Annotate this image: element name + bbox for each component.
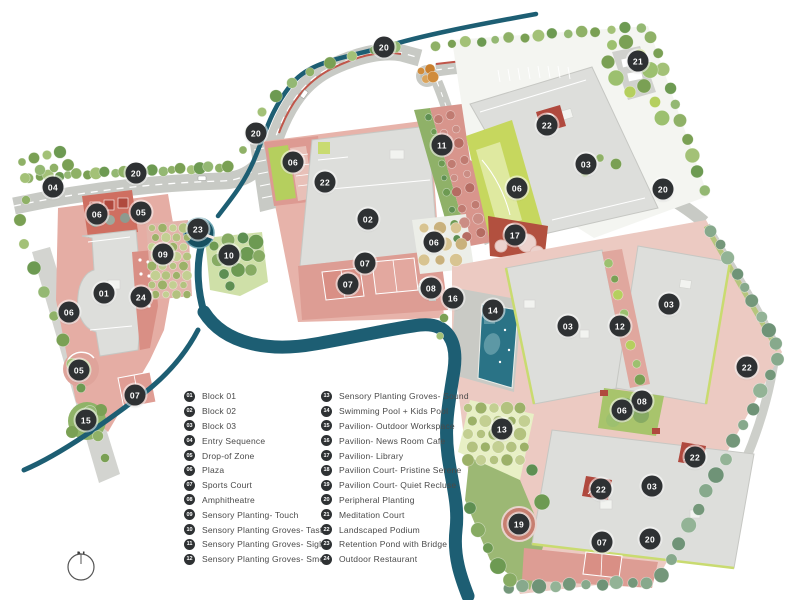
map-marker-21: 21 — [628, 51, 649, 72]
legend-item: 03Block 03 — [184, 419, 314, 434]
legend-number-badge: 08 — [184, 494, 195, 505]
map-marker-07: 07 — [592, 532, 613, 553]
legend-label: Entry Sequence — [202, 436, 265, 446]
map-marker-03: 03 — [576, 154, 597, 175]
legend-label: Retention Pond with Bridge — [339, 539, 447, 549]
legend-number-badge: 05 — [184, 450, 195, 461]
legend-label: Pavilion- Library — [339, 451, 403, 461]
map-marker-03: 03 — [642, 476, 663, 497]
legend-label: Sensory Planting- Touch — [202, 510, 299, 520]
legend-item: 15Pavilion- Outdoor Workspace — [321, 419, 451, 434]
map-marker-06: 06 — [612, 400, 633, 421]
legend-label: Outdoor Restaurant — [339, 554, 417, 564]
north-compass: N — [57, 550, 105, 562]
site-plan: 2021222011060320220406200506022317060910… — [0, 0, 800, 600]
legend-label: Swimming Pool + Kids Pool — [339, 406, 448, 416]
map-marker-06: 06 — [507, 178, 528, 199]
legend-label: Peripheral Planting — [339, 495, 415, 505]
legend-label: Drop-of Zone — [202, 451, 254, 461]
legend-item: 12Sensory Planting Groves- Smell — [184, 552, 314, 567]
legend-number-badge: 16 — [321, 435, 332, 446]
legend-number-badge: 01 — [184, 391, 195, 402]
map-marker-05: 05 — [69, 360, 90, 381]
legend-item: 24Outdoor Restaurant — [321, 552, 451, 567]
legend-label: Meditation Court — [339, 510, 405, 520]
legend-item: 23Retention Pond with Bridge — [321, 537, 451, 552]
compass-dial — [57, 550, 105, 584]
map-marker-22: 22 — [685, 447, 706, 468]
map-marker-04: 04 — [43, 177, 64, 198]
map-marker-22: 22 — [537, 115, 558, 136]
legend-number-badge: 20 — [321, 494, 332, 505]
map-marker-07: 07 — [125, 385, 146, 406]
legend-item: 06Plaza — [184, 463, 314, 478]
legend-item: 16Pavilion- News Room Cafe — [321, 433, 451, 448]
map-marker-15: 15 — [76, 410, 97, 431]
legend-number-badge: 23 — [321, 539, 332, 550]
map-marker-06: 06 — [283, 152, 304, 173]
legend-number-badge: 19 — [321, 480, 332, 491]
map-marker-22: 22 — [737, 357, 758, 378]
legend-label: Sensory Planting Groves- Sight — [202, 539, 327, 549]
legend-number-badge: 24 — [321, 554, 332, 565]
map-marker-22: 22 — [315, 172, 336, 193]
map-marker-24: 24 — [131, 287, 152, 308]
map-marker-01: 01 — [94, 283, 115, 304]
legend-item: 07Sports Court — [184, 478, 314, 493]
map-marker-06: 06 — [424, 232, 445, 253]
legend-number-badge: 03 — [184, 420, 195, 431]
map-marker-23: 23 — [188, 219, 209, 240]
legend-number-badge: 12 — [184, 554, 195, 565]
legend-item: 20Peripheral Planting — [321, 493, 451, 508]
legend-number-badge: 04 — [184, 435, 195, 446]
map-marker-12: 12 — [610, 316, 631, 337]
legend-label: Pavilion Court- Quiet Recluse — [339, 480, 456, 490]
map-marker-07: 07 — [355, 253, 376, 274]
legend-item: 11Sensory Planting Groves- Sight — [184, 537, 314, 552]
map-marker-17: 17 — [505, 225, 526, 246]
legend-label: Amphitheatre — [202, 495, 255, 505]
map-marker-20: 20 — [653, 179, 674, 200]
legend-label: Sensory Planting Groves- Smell — [202, 554, 328, 564]
legend-item: 02Block 02 — [184, 404, 314, 419]
legend-item: 04Entry Sequence — [184, 433, 314, 448]
legend-label: Pavilion- Outdoor Workspace — [339, 421, 455, 431]
map-marker-19: 19 — [509, 514, 530, 535]
map-marker-03: 03 — [659, 294, 680, 315]
map-marker-08: 08 — [421, 278, 442, 299]
legend-number-badge: 18 — [321, 465, 332, 476]
legend-label: Sports Court — [202, 480, 252, 490]
map-marker-09: 09 — [153, 244, 174, 265]
map-marker-20: 20 — [374, 37, 395, 58]
legend-label: Sensory Planting Groves- Sound — [339, 391, 469, 401]
map-marker-22: 22 — [591, 479, 612, 500]
map-marker-20: 20 — [246, 123, 267, 144]
legend-label: Plaza — [202, 465, 224, 475]
legend-number-badge: 09 — [184, 509, 195, 520]
map-marker-06: 06 — [87, 204, 108, 225]
map-marker-07: 07 — [338, 274, 359, 295]
legend-number-badge: 11 — [184, 539, 195, 550]
legend-item: 17Pavilion- Library — [321, 448, 451, 463]
legend-number-badge: 02 — [184, 406, 195, 417]
map-marker-03: 03 — [558, 316, 579, 337]
legend-number-badge: 14 — [321, 406, 332, 417]
map-marker-16: 16 — [443, 288, 464, 309]
legend-item: 18Pavilion Court- Pristine Serene — [321, 463, 451, 478]
legend-label: Pavilion- News Room Cafe — [339, 436, 445, 446]
map-marker-11: 11 — [432, 135, 453, 156]
map-marker-05: 05 — [131, 202, 152, 223]
legend-item: 22Landscaped Podium — [321, 522, 451, 537]
legend-item: 01Block 01 — [184, 389, 314, 404]
legend-label: Block 02 — [202, 406, 236, 416]
legend-number-badge: 10 — [184, 524, 195, 535]
map-marker-06: 06 — [59, 302, 80, 323]
map-marker-20: 20 — [640, 529, 661, 550]
legend-number-badge: 17 — [321, 450, 332, 461]
legend-number-badge: 15 — [321, 420, 332, 431]
legend-number-badge: 21 — [321, 509, 332, 520]
legend-label: Block 01 — [202, 391, 236, 401]
legend-item: 21Meditation Court — [321, 507, 451, 522]
legend-item: 19Pavilion Court- Quiet Recluse — [321, 478, 451, 493]
map-marker-13: 13 — [492, 419, 513, 440]
legend-item: 14Swimming Pool + Kids Pool — [321, 404, 451, 419]
legend-number-badge: 07 — [184, 480, 195, 491]
legend-item: 05Drop-of Zone — [184, 448, 314, 463]
map-marker-08: 08 — [632, 391, 653, 412]
legend-item: 13Sensory Planting Groves- Sound — [321, 389, 451, 404]
legend-label: Landscaped Podium — [339, 525, 420, 535]
legend-item: 08Amphitheatre — [184, 493, 314, 508]
legend-label: Pavilion Court- Pristine Serene — [339, 465, 461, 475]
map-marker-20: 20 — [126, 163, 147, 184]
legend-number-badge: 06 — [184, 465, 195, 476]
legend-number-badge: 13 — [321, 391, 332, 402]
map-marker-14: 14 — [483, 300, 504, 321]
legend-item: 10Sensory Planting Groves- Taste — [184, 522, 314, 537]
map-marker-02: 02 — [358, 209, 379, 230]
legend-number-badge: 22 — [321, 524, 332, 535]
legend: 01Block 0102Block 0203Block 0304Entry Se… — [184, 389, 451, 567]
map-marker-10: 10 — [219, 245, 240, 266]
legend-label: Sensory Planting Groves- Taste — [202, 525, 327, 535]
legend-item: 09Sensory Planting- Touch — [184, 507, 314, 522]
legend-column: 13Sensory Planting Groves- Sound14Swimmi… — [321, 389, 451, 567]
legend-label: Block 03 — [202, 421, 236, 431]
legend-column: 01Block 0102Block 0203Block 0304Entry Se… — [184, 389, 314, 567]
